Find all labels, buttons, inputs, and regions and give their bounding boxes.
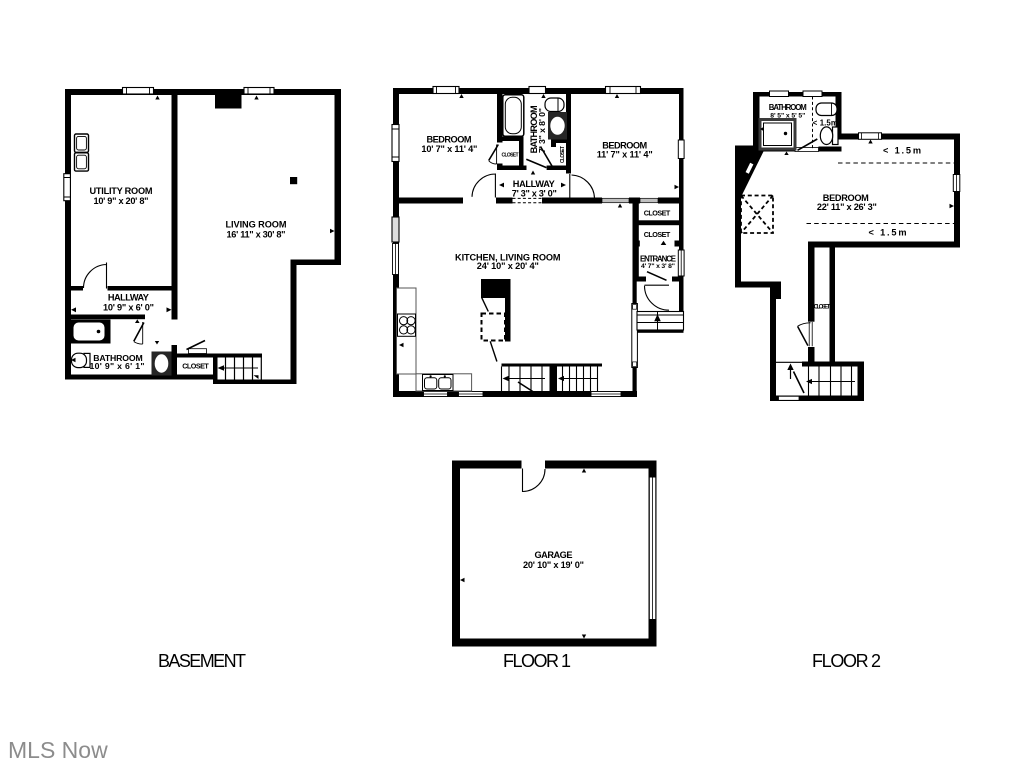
svg-text:CLOSET: CLOSET bbox=[644, 230, 671, 239]
svg-text:8' 5" x 5' 5": 8' 5" x 5' 5" bbox=[770, 112, 805, 119]
svg-text:10' 9" x 6' 0": 10' 9" x 6' 0" bbox=[103, 303, 154, 313]
svg-text:10' 9" x 6' 1": 10' 9" x 6' 1" bbox=[90, 361, 145, 371]
svg-text:10' 7" x 11' 4": 10' 7" x 11' 4" bbox=[421, 144, 477, 154]
svg-text:20' 10" x 19' 0": 20' 10" x 19' 0" bbox=[523, 560, 584, 570]
svg-text:CLOSET: CLOSET bbox=[182, 361, 209, 370]
svg-text:CLOSET: CLOSET bbox=[644, 209, 671, 218]
svg-text:HALLWAY: HALLWAY bbox=[108, 293, 149, 303]
svg-text:24' 10" x 20' 4": 24' 10" x 20' 4" bbox=[477, 261, 539, 271]
svg-text:16' 11" x 30' 8": 16' 11" x 30' 8" bbox=[227, 230, 286, 240]
svg-text:CLOSET: CLOSET bbox=[560, 146, 566, 163]
svg-text:LIVING ROOM: LIVING ROOM bbox=[226, 219, 287, 229]
svg-text:7' 3" x 3' 0": 7' 3" x 3' 0" bbox=[512, 189, 557, 199]
svg-text:FLOOR 2: FLOOR 2 bbox=[812, 651, 881, 671]
svg-text:BATHROOM: BATHROOM bbox=[769, 103, 807, 112]
svg-text:FLOOR 1: FLOOR 1 bbox=[503, 651, 571, 671]
svg-text:CLOSET: CLOSET bbox=[814, 305, 831, 311]
svg-text:ENTRANCE: ENTRANCE bbox=[640, 254, 676, 263]
svg-text:10' 9" x 20' 8": 10' 9" x 20' 8" bbox=[94, 196, 149, 206]
svg-text:4' 7" x 3' 8": 4' 7" x 3' 8" bbox=[641, 263, 675, 270]
svg-text:< 1.5m: < 1.5m bbox=[813, 118, 838, 127]
svg-text:11' 7" x 11' 4": 11' 7" x 11' 4" bbox=[597, 150, 653, 160]
svg-text:CLOSET: CLOSET bbox=[502, 152, 519, 158]
svg-text:22' 11" x 26' 3": 22' 11" x 26' 3" bbox=[817, 202, 877, 212]
svg-text:UTILITY ROOM: UTILITY ROOM bbox=[90, 186, 153, 196]
svg-text:MLS Now: MLS Now bbox=[8, 737, 108, 763]
svg-text:7' 3" x 8' 0": 7' 3" x 8' 0" bbox=[537, 108, 547, 153]
svg-text:BASEMENT: BASEMENT bbox=[158, 651, 246, 671]
svg-text:GARAGE: GARAGE bbox=[535, 550, 573, 560]
